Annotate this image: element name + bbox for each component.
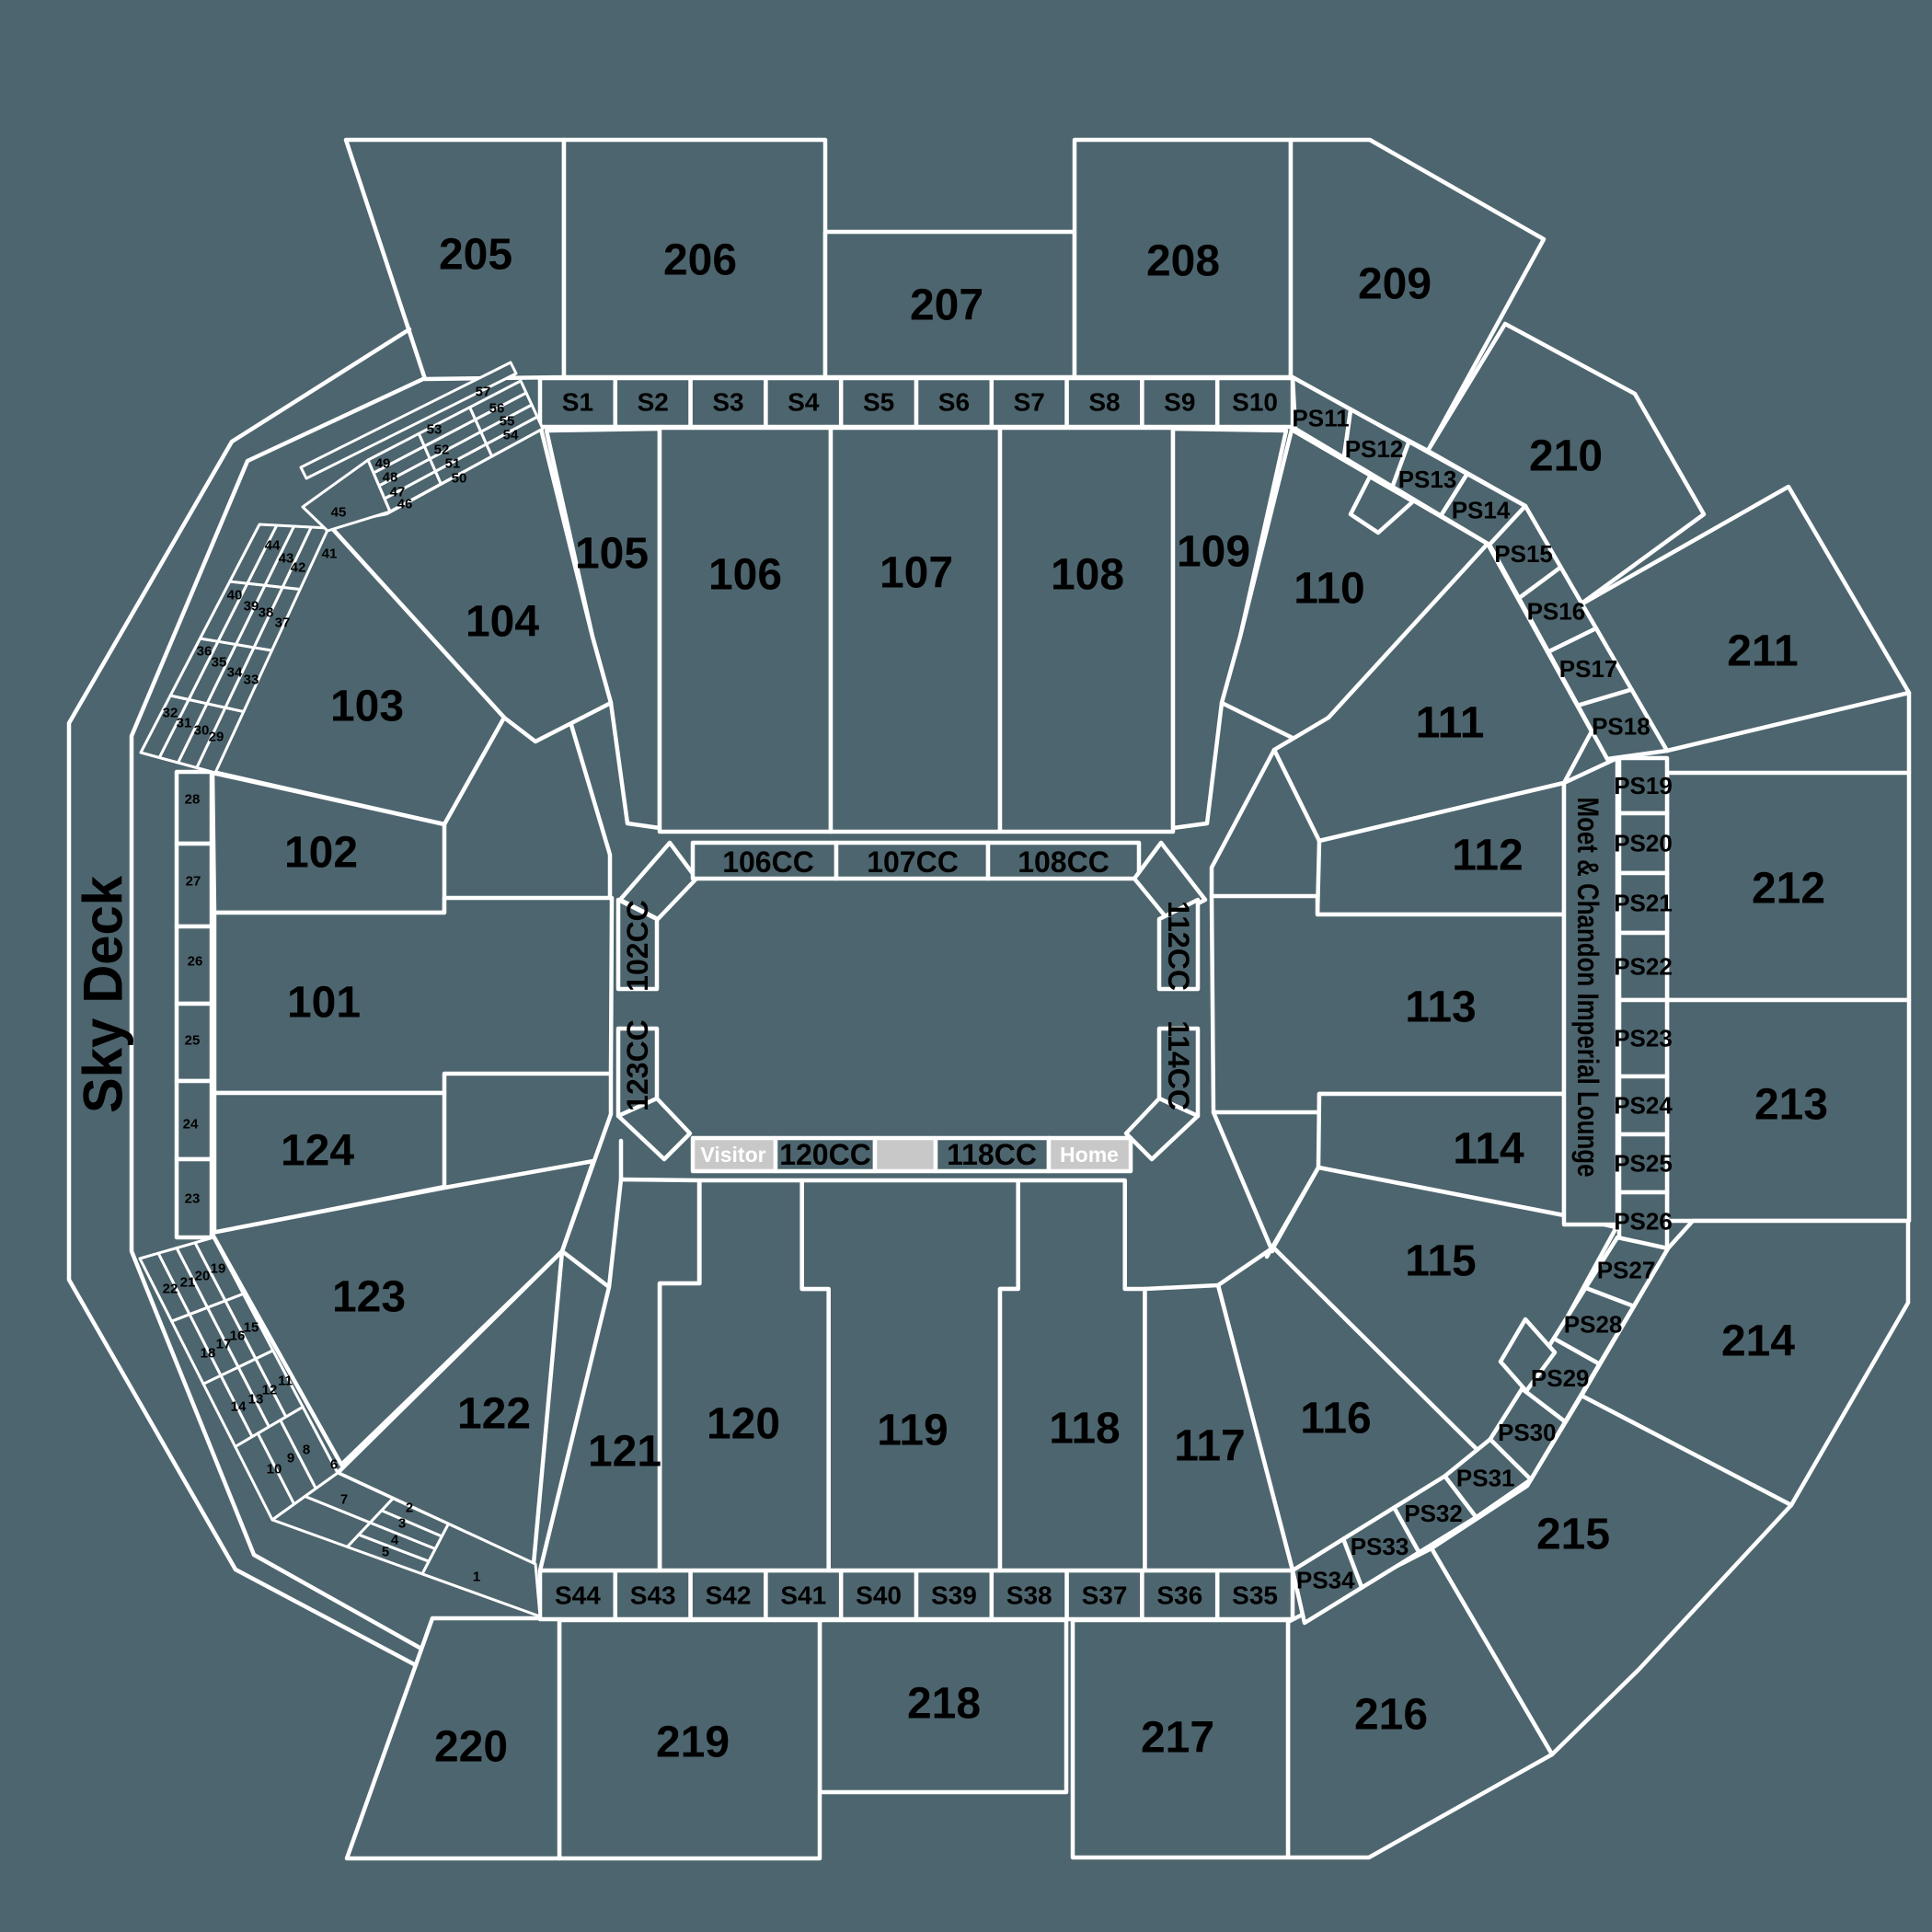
svg-text:PS24: PS24 bbox=[1614, 1092, 1673, 1120]
svg-text:54: 54 bbox=[503, 428, 519, 443]
svg-text:124: 124 bbox=[281, 1127, 354, 1176]
svg-text:41: 41 bbox=[322, 546, 338, 562]
svg-text:48: 48 bbox=[383, 470, 398, 486]
svg-text:115: 115 bbox=[1405, 1237, 1476, 1286]
svg-text:119: 119 bbox=[877, 1407, 948, 1455]
svg-text:40: 40 bbox=[227, 588, 243, 604]
svg-text:123CC: 123CC bbox=[621, 1019, 654, 1111]
svg-text:206: 206 bbox=[663, 236, 737, 285]
svg-text:PS27: PS27 bbox=[1597, 1256, 1656, 1283]
svg-text:101: 101 bbox=[287, 979, 361, 1028]
svg-text:208: 208 bbox=[1146, 237, 1220, 286]
svg-text:205: 205 bbox=[439, 231, 512, 280]
svg-text:211: 211 bbox=[1727, 627, 1798, 676]
svg-text:209: 209 bbox=[1358, 260, 1432, 309]
svg-text:1: 1 bbox=[473, 1570, 480, 1585]
svg-text:218: 218 bbox=[907, 1680, 981, 1729]
svg-text:51: 51 bbox=[445, 456, 461, 472]
svg-text:PS31: PS31 bbox=[1456, 1465, 1515, 1492]
svg-text:Visitor: Visitor bbox=[700, 1143, 765, 1167]
svg-text:PS30: PS30 bbox=[1498, 1419, 1557, 1446]
svg-text:23: 23 bbox=[185, 1191, 201, 1207]
svg-text:PS25: PS25 bbox=[1614, 1150, 1673, 1178]
svg-text:213: 213 bbox=[1754, 1081, 1828, 1130]
svg-text:21: 21 bbox=[180, 1275, 196, 1291]
svg-text:PS16: PS16 bbox=[1527, 598, 1586, 626]
svg-text:2: 2 bbox=[406, 1501, 413, 1516]
svg-text:37: 37 bbox=[275, 615, 291, 631]
svg-text:123: 123 bbox=[332, 1273, 406, 1322]
svg-text:22: 22 bbox=[163, 1282, 178, 1297]
svg-text:43: 43 bbox=[279, 551, 294, 567]
svg-text:17: 17 bbox=[216, 1337, 232, 1352]
svg-text:114CC: 114CC bbox=[1162, 1020, 1195, 1110]
svg-text:PS20: PS20 bbox=[1614, 830, 1673, 857]
svg-text:PS26: PS26 bbox=[1614, 1208, 1673, 1236]
svg-text:PS12: PS12 bbox=[1345, 435, 1404, 463]
svg-text:PS29: PS29 bbox=[1531, 1364, 1590, 1392]
svg-text:9: 9 bbox=[287, 1451, 294, 1466]
svg-text:PS33: PS33 bbox=[1351, 1533, 1409, 1560]
svg-text:34: 34 bbox=[227, 665, 243, 681]
svg-text:28: 28 bbox=[185, 792, 201, 808]
svg-text:112: 112 bbox=[1452, 832, 1523, 880]
svg-text:111: 111 bbox=[1416, 699, 1485, 748]
svg-text:S39: S39 bbox=[931, 1581, 977, 1610]
svg-text:36: 36 bbox=[197, 644, 213, 660]
svg-text:50: 50 bbox=[452, 471, 467, 487]
svg-text:107: 107 bbox=[880, 549, 953, 598]
svg-text:S2: S2 bbox=[638, 388, 669, 417]
svg-text:30: 30 bbox=[194, 723, 210, 739]
svg-text:PS14: PS14 bbox=[1452, 496, 1511, 523]
svg-text:PS28: PS28 bbox=[1564, 1310, 1623, 1338]
svg-text:220: 220 bbox=[434, 1723, 508, 1772]
svg-text:S4: S4 bbox=[788, 388, 820, 417]
svg-text:6: 6 bbox=[330, 1457, 338, 1473]
svg-text:118: 118 bbox=[1049, 1405, 1120, 1454]
svg-text:33: 33 bbox=[244, 673, 259, 688]
svg-text:S44: S44 bbox=[555, 1581, 601, 1610]
svg-text:108: 108 bbox=[1051, 551, 1124, 600]
svg-text:217: 217 bbox=[1141, 1714, 1214, 1763]
svg-text:120CC: 120CC bbox=[779, 1138, 871, 1171]
svg-text:27: 27 bbox=[186, 874, 201, 890]
svg-text:215: 215 bbox=[1536, 1511, 1610, 1559]
svg-text:8: 8 bbox=[303, 1443, 310, 1458]
svg-text:24: 24 bbox=[183, 1117, 199, 1133]
svg-text:S38: S38 bbox=[1006, 1581, 1052, 1610]
svg-text:117: 117 bbox=[1174, 1422, 1245, 1471]
svg-text:57: 57 bbox=[476, 385, 491, 400]
svg-text:38: 38 bbox=[259, 605, 274, 621]
svg-text:13: 13 bbox=[248, 1392, 264, 1408]
svg-text:S9: S9 bbox=[1164, 388, 1195, 417]
svg-text:PS18: PS18 bbox=[1592, 712, 1650, 740]
svg-text:12: 12 bbox=[262, 1383, 278, 1398]
svg-text:PS23: PS23 bbox=[1614, 1025, 1673, 1052]
svg-text:S1: S1 bbox=[562, 388, 593, 417]
svg-text:45: 45 bbox=[331, 505, 347, 521]
svg-text:5: 5 bbox=[382, 1545, 389, 1560]
svg-text:39: 39 bbox=[244, 599, 259, 615]
svg-text:16: 16 bbox=[230, 1328, 246, 1344]
svg-text:PS19: PS19 bbox=[1614, 772, 1673, 799]
svg-text:25: 25 bbox=[185, 1033, 201, 1049]
svg-text:Moet & Chandon Imperial Lounge: Moet & Chandon Imperial Lounge bbox=[1571, 798, 1604, 1178]
svg-text:PS17: PS17 bbox=[1559, 655, 1618, 683]
svg-text:19: 19 bbox=[211, 1261, 226, 1277]
svg-text:106CC: 106CC bbox=[722, 845, 814, 879]
svg-text:219: 219 bbox=[656, 1719, 730, 1767]
svg-text:7: 7 bbox=[340, 1492, 348, 1508]
svg-text:S36: S36 bbox=[1156, 1581, 1202, 1610]
svg-text:210: 210 bbox=[1529, 432, 1603, 481]
svg-text:105: 105 bbox=[575, 530, 649, 579]
svg-text:32: 32 bbox=[163, 706, 178, 721]
svg-text:S3: S3 bbox=[712, 388, 743, 417]
svg-text:52: 52 bbox=[434, 443, 450, 458]
svg-text:113: 113 bbox=[1405, 983, 1476, 1032]
svg-text:122: 122 bbox=[457, 1390, 531, 1439]
svg-text:S43: S43 bbox=[630, 1581, 676, 1610]
svg-text:121: 121 bbox=[588, 1428, 661, 1477]
svg-text:44: 44 bbox=[265, 538, 281, 554]
svg-text:102: 102 bbox=[284, 829, 358, 878]
svg-text:118CC: 118CC bbox=[947, 1138, 1037, 1171]
svg-text:Sky Deck: Sky Deck bbox=[73, 875, 134, 1113]
svg-text:114: 114 bbox=[1453, 1125, 1524, 1174]
svg-text:PS34: PS34 bbox=[1296, 1566, 1355, 1593]
svg-text:S6: S6 bbox=[938, 388, 970, 417]
svg-text:10: 10 bbox=[267, 1462, 282, 1478]
svg-text:107CC: 107CC bbox=[867, 845, 959, 879]
svg-text:110: 110 bbox=[1294, 565, 1364, 614]
svg-text:20: 20 bbox=[195, 1269, 211, 1284]
svg-text:29: 29 bbox=[209, 730, 224, 745]
svg-text:3: 3 bbox=[398, 1516, 406, 1532]
svg-text:103: 103 bbox=[330, 683, 404, 731]
svg-text:S37: S37 bbox=[1082, 1581, 1128, 1610]
svg-text:S7: S7 bbox=[1014, 388, 1045, 417]
svg-text:PS11: PS11 bbox=[1292, 405, 1349, 432]
svg-text:31: 31 bbox=[177, 716, 192, 731]
svg-text:102CC: 102CC bbox=[621, 900, 654, 992]
svg-text:11: 11 bbox=[278, 1374, 293, 1389]
svg-text:104: 104 bbox=[466, 598, 539, 647]
svg-text:S8: S8 bbox=[1088, 388, 1120, 417]
svg-text:S42: S42 bbox=[706, 1581, 752, 1610]
svg-text:PS15: PS15 bbox=[1494, 540, 1553, 568]
svg-text:S41: S41 bbox=[780, 1581, 826, 1610]
svg-text:216: 216 bbox=[1354, 1691, 1428, 1740]
svg-text:PS32: PS32 bbox=[1404, 1500, 1463, 1527]
svg-text:S35: S35 bbox=[1232, 1581, 1278, 1610]
svg-text:PS22: PS22 bbox=[1614, 953, 1673, 981]
svg-text:PS21: PS21 bbox=[1614, 890, 1673, 917]
svg-text:109: 109 bbox=[1177, 528, 1250, 577]
svg-text:PS13: PS13 bbox=[1398, 466, 1457, 493]
svg-text:35: 35 bbox=[212, 655, 227, 671]
svg-text:53: 53 bbox=[427, 422, 443, 438]
svg-text:18: 18 bbox=[201, 1346, 216, 1362]
svg-text:S5: S5 bbox=[863, 388, 894, 417]
svg-text:49: 49 bbox=[375, 456, 391, 472]
svg-text:14: 14 bbox=[231, 1399, 247, 1415]
svg-text:112CC: 112CC bbox=[1162, 901, 1195, 991]
svg-text:4: 4 bbox=[391, 1533, 399, 1548]
svg-text:S10: S10 bbox=[1232, 388, 1278, 417]
svg-text:116: 116 bbox=[1300, 1395, 1371, 1443]
svg-text:Home: Home bbox=[1060, 1143, 1119, 1167]
svg-text:26: 26 bbox=[188, 954, 203, 970]
svg-text:15: 15 bbox=[244, 1320, 259, 1336]
svg-text:207: 207 bbox=[910, 282, 983, 330]
svg-text:56: 56 bbox=[489, 401, 505, 417]
svg-text:47: 47 bbox=[390, 485, 406, 500]
svg-text:S40: S40 bbox=[856, 1581, 902, 1610]
svg-text:120: 120 bbox=[707, 1400, 780, 1449]
svg-text:214: 214 bbox=[1721, 1317, 1795, 1366]
svg-text:108CC: 108CC bbox=[1018, 845, 1110, 879]
svg-text:106: 106 bbox=[708, 551, 782, 600]
svg-text:212: 212 bbox=[1752, 865, 1825, 914]
